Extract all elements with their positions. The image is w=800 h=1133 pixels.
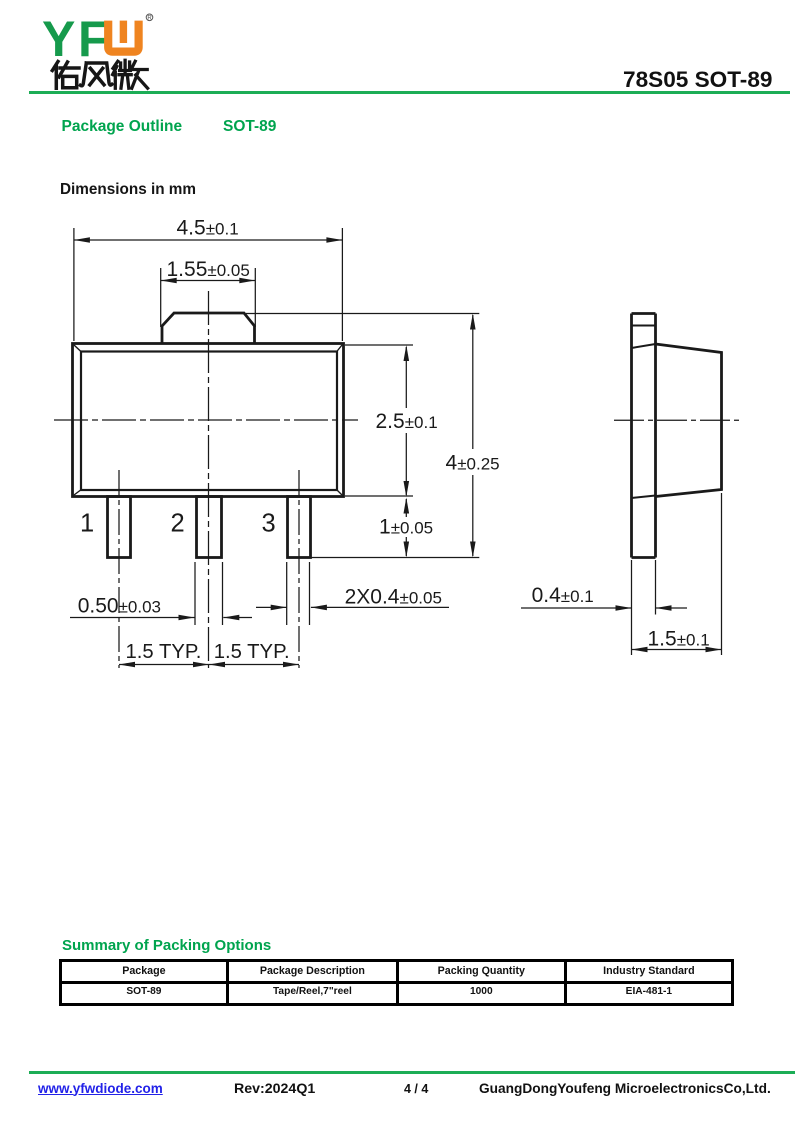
svg-text:0.4±0.1: 0.4±0.1 xyxy=(532,584,594,607)
svg-text:2X0.4±0.05: 2X0.4±0.05 xyxy=(345,586,442,609)
svg-text:0.50±0.03: 0.50±0.03 xyxy=(78,594,161,617)
svg-text:1: 1 xyxy=(80,510,94,538)
svg-text:3: 3 xyxy=(262,510,276,538)
svg-text:1.5 TYP.: 1.5 TYP. xyxy=(214,641,290,663)
svg-text:4.5±0.1: 4.5±0.1 xyxy=(177,217,239,240)
svg-text:1.5±0.1: 1.5±0.1 xyxy=(648,627,710,650)
svg-text:2.5±0.1: 2.5±0.1 xyxy=(376,410,438,433)
svg-text:1±0.05: 1±0.05 xyxy=(379,516,433,539)
svg-text:1.5 TYP.: 1.5 TYP. xyxy=(126,641,202,663)
svg-text:1.55±0.05: 1.55±0.05 xyxy=(167,258,250,281)
svg-text:2: 2 xyxy=(171,510,185,538)
svg-text:4±0.25: 4±0.25 xyxy=(446,452,500,475)
